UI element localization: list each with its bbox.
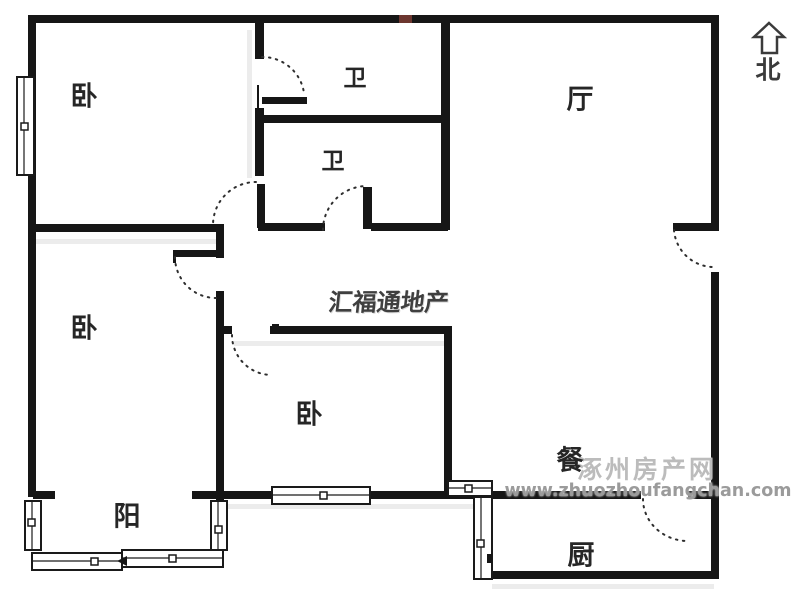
door-leaf-entry	[673, 223, 712, 231]
door-arc-bath1	[262, 57, 304, 93]
window-balcony-front-1	[32, 553, 122, 570]
door-leaf-bedroom2	[173, 250, 217, 257]
wall-bedroom3-top-stub	[218, 326, 232, 334]
wall-hall-upper	[216, 224, 224, 258]
room-label-kitchen: 厨	[568, 543, 595, 570]
wall-bath-right	[441, 15, 450, 230]
room-label-bath-ensuite: 卫	[344, 67, 367, 90]
wall-bath2-bottom-right	[371, 223, 448, 231]
floor-plan: 汇福通地产 涿州房产网 www.zhuozhoufangchan.com 卧 卫…	[0, 0, 800, 597]
door-jamb-bath1	[257, 85, 259, 108]
door-jamb-bedroom3	[272, 324, 279, 334]
door-arc-entry	[674, 230, 713, 267]
window-bedroom3-bottom	[272, 487, 370, 504]
room-label-balcony: 阳	[114, 504, 141, 531]
wall-bedroom3-top	[270, 326, 452, 334]
watermark-agency: 汇福通地产	[327, 283, 451, 318]
room-label-bedroom-west: 卧	[71, 316, 98, 343]
wall-right-upper	[711, 15, 719, 231]
door-arc-bedroom1	[213, 182, 256, 225]
window-balcony-left	[25, 501, 41, 550]
door-leaf-bath2	[363, 187, 372, 229]
door-leaf-bath1	[262, 97, 307, 104]
wall-bath-divider	[258, 115, 448, 123]
room-label-hall: 厅	[567, 87, 594, 114]
room-label-bedroom-main: 卧	[71, 84, 98, 111]
window-balcony-front-2	[117, 550, 223, 567]
wall-bath-left-c	[257, 184, 265, 228]
window-balcony-right	[211, 501, 227, 550]
room-label-bedroom-middle: 卧	[296, 402, 323, 429]
door-arc-bedroom2	[175, 257, 216, 298]
wall-hall-lower	[216, 291, 224, 500]
wall-bottom-stub-left	[33, 491, 55, 499]
wall-bedroom3-right	[444, 330, 452, 498]
window-kitchen-left	[474, 497, 492, 579]
room-label-bath-common: 卫	[322, 150, 345, 173]
north-label: 北	[755, 58, 780, 83]
north-arrow-icon	[754, 23, 784, 53]
window-dining-bottom	[448, 481, 492, 496]
wall-right-lower	[711, 272, 719, 579]
room-label-dining: 餐	[557, 448, 584, 475]
wall-kitchen-bottom	[490, 571, 718, 579]
wall-bath-left-a	[255, 15, 264, 59]
watermark-site-url: www.zhuozhoufangchan.com	[504, 481, 791, 501]
door-arc-bath2	[323, 186, 367, 230]
wall-bath2-bottom-left	[258, 223, 325, 231]
entry-marker	[399, 15, 412, 23]
wall-top	[33, 15, 718, 23]
door-arc-kitchen	[643, 499, 688, 541]
window-bedroom1-left	[17, 77, 34, 175]
wall-bedroom1-bottom	[33, 224, 224, 232]
